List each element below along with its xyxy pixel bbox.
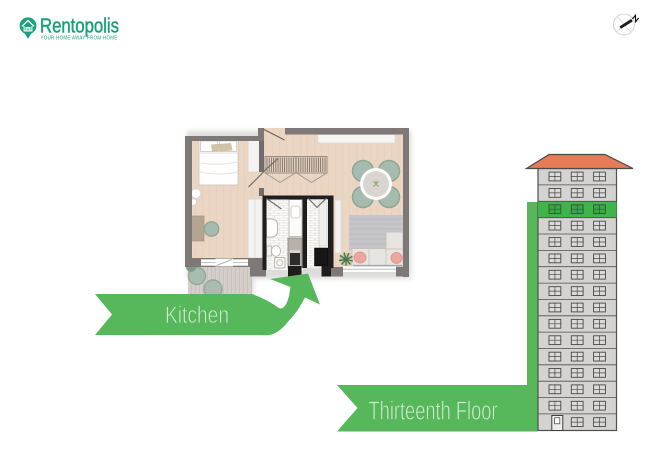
svg-text:Rentopolis: Rentopolis [40, 15, 119, 38]
svg-text:YOUR HOME AWAY FROM HOME: YOUR HOME AWAY FROM HOME [41, 35, 118, 41]
svg-text:Thirteenth Floor: Thirteenth Floor [369, 398, 498, 426]
svg-text:Kitchen: Kitchen [165, 302, 229, 329]
